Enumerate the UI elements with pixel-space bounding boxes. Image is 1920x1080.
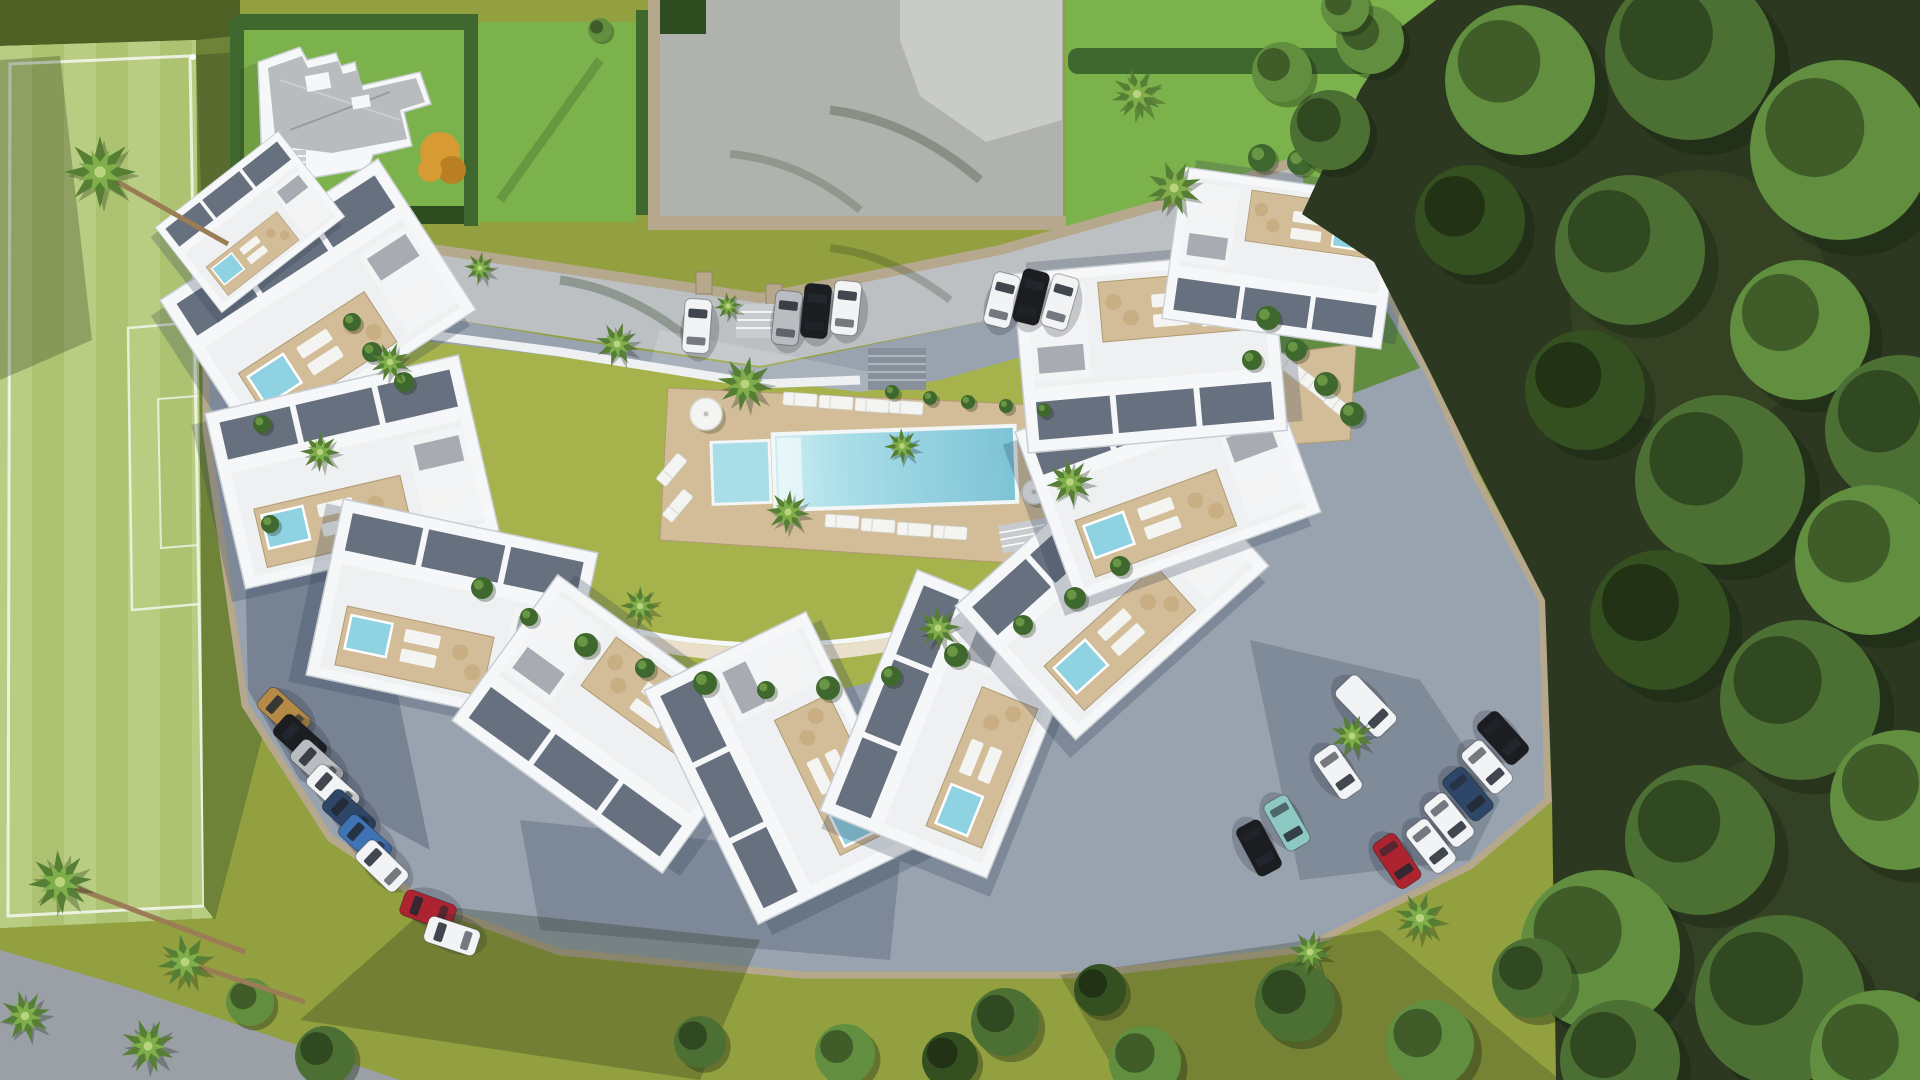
tree-highlight bbox=[927, 1038, 958, 1069]
tree-highlight bbox=[1709, 932, 1803, 1026]
car-body bbox=[800, 283, 832, 340]
sun-lounger bbox=[897, 522, 932, 537]
palm-crown bbox=[181, 958, 190, 967]
lounger-bed bbox=[855, 398, 890, 413]
shrub-highlight bbox=[1245, 353, 1254, 362]
palm-crown bbox=[1348, 732, 1355, 739]
tree-highlight bbox=[1115, 1033, 1155, 1073]
shrub-highlight bbox=[1001, 401, 1007, 407]
palm-crown bbox=[1066, 478, 1074, 486]
shrub-highlight bbox=[365, 345, 374, 354]
car-body bbox=[771, 290, 803, 347]
palm-crown bbox=[934, 624, 941, 631]
tree-highlight bbox=[820, 1030, 853, 1063]
sun-lounger bbox=[855, 398, 890, 413]
palm-crown bbox=[55, 877, 65, 887]
tree-highlight bbox=[300, 1032, 333, 1065]
tree-highlight bbox=[1499, 946, 1543, 990]
tree-highlight bbox=[1734, 636, 1822, 724]
driveway-wall-west bbox=[648, 0, 660, 230]
tree-highlight bbox=[1262, 970, 1306, 1014]
sun-lounger bbox=[783, 392, 818, 407]
palm-crown bbox=[899, 443, 905, 449]
tree-highlight bbox=[1393, 1009, 1441, 1057]
car-rear-window bbox=[686, 336, 706, 345]
tree-highlight bbox=[1535, 342, 1601, 408]
palm-crown bbox=[387, 359, 393, 365]
tree-highlight bbox=[1458, 20, 1541, 103]
corner-flag bbox=[190, 54, 196, 60]
hedge-east bbox=[464, 14, 478, 226]
tree-highlight bbox=[1765, 78, 1864, 177]
palm-crown bbox=[317, 449, 323, 455]
car-windshield bbox=[688, 308, 708, 318]
palm-crown bbox=[637, 603, 643, 609]
parasol-pole bbox=[704, 412, 709, 417]
shrub-highlight bbox=[345, 315, 353, 323]
lounger-bed bbox=[889, 400, 924, 415]
sun-lounger bbox=[861, 518, 896, 533]
shrub-highlight bbox=[1016, 618, 1025, 627]
shrub-highlight bbox=[1252, 148, 1265, 161]
entrance-steps bbox=[736, 304, 776, 338]
palm-crown bbox=[1133, 90, 1141, 98]
car-body bbox=[682, 298, 713, 354]
tree-highlight bbox=[678, 1021, 707, 1050]
car-body bbox=[830, 280, 862, 337]
shrub-highlight bbox=[925, 393, 931, 399]
tree-highlight bbox=[1842, 744, 1919, 821]
palm-crown bbox=[741, 380, 750, 389]
tree-highlight bbox=[1649, 412, 1743, 506]
palm-crown bbox=[784, 508, 791, 515]
aerial-render-canvas bbox=[0, 0, 1920, 1080]
tree-highlight bbox=[1570, 1012, 1636, 1078]
autumn-canopy bbox=[438, 156, 466, 184]
shrub-highlight bbox=[255, 417, 263, 425]
lounger-bed bbox=[783, 392, 818, 407]
palm-crown bbox=[94, 166, 106, 178]
lounger-bed bbox=[861, 518, 896, 533]
tree-highlight bbox=[1638, 780, 1721, 863]
palm-crown bbox=[1170, 184, 1179, 193]
tree-highlight bbox=[1078, 969, 1107, 998]
shrub-highlight bbox=[1039, 405, 1045, 411]
shrub-highlight bbox=[263, 517, 271, 525]
scene-svg bbox=[0, 0, 1920, 1080]
shrub-highlight bbox=[1113, 559, 1122, 568]
palm-crown bbox=[21, 1012, 29, 1020]
lounger-bed bbox=[825, 514, 860, 529]
shrub-highlight bbox=[759, 683, 767, 691]
tree-highlight bbox=[1808, 500, 1891, 583]
tree-highlight bbox=[1838, 370, 1920, 453]
steps-slab bbox=[736, 304, 776, 338]
tree-highlight bbox=[1602, 564, 1679, 641]
palm-crown bbox=[613, 340, 620, 347]
tree-highlight bbox=[1257, 48, 1290, 81]
tree-highlight bbox=[1424, 176, 1485, 237]
lounger-bed bbox=[897, 522, 932, 537]
sun-lounger bbox=[819, 395, 854, 410]
louvered-pergola bbox=[868, 348, 926, 390]
tree-highlight bbox=[1568, 190, 1651, 273]
autumn-canopy bbox=[418, 158, 442, 182]
shrub-highlight bbox=[1067, 590, 1077, 600]
pergola-roof bbox=[868, 348, 926, 390]
tree-highlight bbox=[1822, 1004, 1899, 1080]
shrub-highlight bbox=[1317, 375, 1328, 386]
shrub-highlight bbox=[474, 580, 484, 590]
tree-highlight bbox=[1297, 98, 1341, 142]
shrub-highlight bbox=[963, 397, 969, 403]
tree-highlight bbox=[1742, 274, 1819, 351]
tree-highlight bbox=[977, 995, 1014, 1032]
driveway-hedge-corner bbox=[660, 0, 706, 34]
tree-highlight bbox=[590, 20, 603, 33]
palm-crown bbox=[477, 265, 482, 270]
kids-pool bbox=[711, 440, 771, 504]
shrub-highlight bbox=[638, 661, 647, 670]
shrub-highlight bbox=[819, 679, 830, 690]
hedge-north bbox=[236, 14, 476, 30]
mowing-stripe bbox=[160, 38, 192, 930]
shrub-highlight bbox=[1288, 342, 1298, 352]
shrub-highlight bbox=[1343, 405, 1354, 416]
palm-crown bbox=[1306, 948, 1313, 955]
driveway-wall-south bbox=[648, 216, 1072, 230]
shrub-highlight bbox=[696, 674, 707, 685]
palm-crown bbox=[726, 304, 731, 309]
gate-pillar bbox=[696, 272, 712, 294]
sun-lounger bbox=[933, 525, 968, 540]
sun-lounger bbox=[889, 400, 924, 415]
shrub-highlight bbox=[1259, 309, 1270, 320]
palm-crown bbox=[1416, 914, 1424, 922]
palm-crown bbox=[144, 1042, 153, 1051]
sun-lounger bbox=[825, 514, 860, 529]
shrub-highlight bbox=[947, 646, 958, 657]
lounger-bed bbox=[819, 395, 854, 410]
shrub-highlight bbox=[522, 610, 530, 618]
lounger-bed bbox=[933, 525, 968, 540]
shrub-highlight bbox=[887, 387, 893, 393]
shrub-highlight bbox=[884, 669, 893, 678]
shrub-highlight bbox=[577, 636, 588, 647]
